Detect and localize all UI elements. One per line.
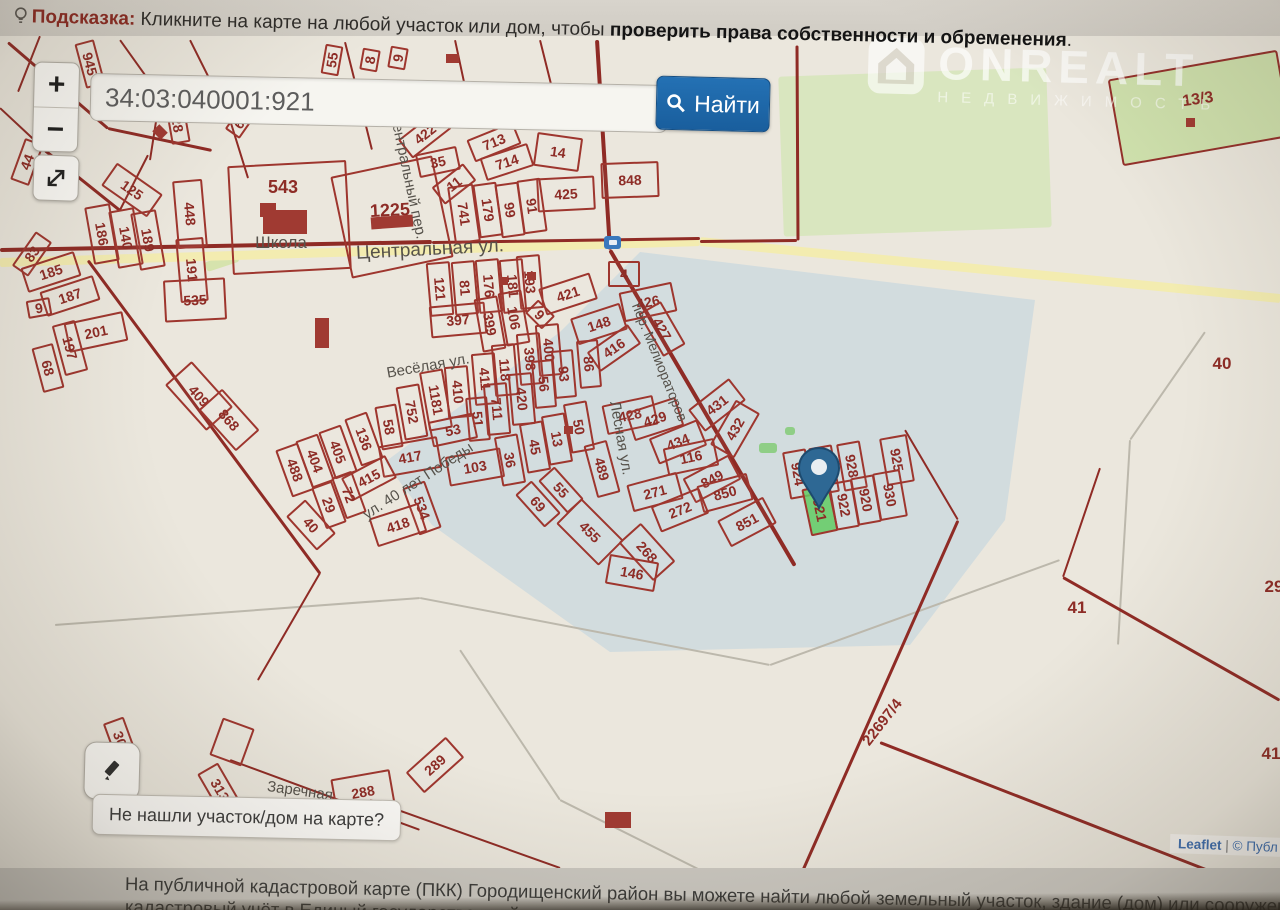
leaflet-attribution: Leaflet | © Публ	[1170, 834, 1280, 857]
parcel-55[interactable]: 55	[321, 44, 344, 77]
parcel-4[interactable]: 4	[608, 261, 640, 287]
attribution-rest[interactable]: © Публ	[1232, 838, 1278, 855]
zoom-out-button[interactable]: −	[33, 107, 78, 152]
building	[1186, 118, 1195, 127]
bus-stop-icon	[604, 236, 621, 249]
parcel-535[interactable]: 535	[163, 277, 227, 322]
boundary-line	[1062, 468, 1101, 578]
parcel-29[interactable]: 29	[1262, 576, 1280, 596]
boundary-line	[796, 45, 800, 240]
pencil-icon	[99, 758, 126, 785]
building	[605, 812, 631, 828]
hint-bar: Подсказка: Кликните на карте на любой уч…	[0, 0, 1280, 36]
parcel-543[interactable]: 543	[263, 177, 303, 197]
building	[499, 277, 508, 285]
search-button[interactable]: Найти	[655, 76, 770, 133]
expand-arrows-icon	[43, 165, 70, 192]
location-pin-icon	[797, 446, 841, 510]
boundary-line	[1062, 576, 1280, 702]
building	[446, 54, 459, 63]
boundary-line	[595, 40, 612, 250]
screen: 9452864412544819118614018983185187920119…	[0, 0, 1280, 910]
green-area	[785, 427, 795, 435]
parcel[interactable]	[209, 717, 255, 766]
leaflet-link[interactable]: Leaflet	[1178, 836, 1222, 853]
parcel-8[interactable]: 8	[359, 48, 381, 73]
street-label: Школа	[255, 233, 307, 253]
path-line	[1129, 331, 1206, 440]
parcel-41[interactable]: 41	[1062, 597, 1092, 617]
zoom-in-button[interactable]: +	[34, 62, 79, 108]
parcel-41[interactable]: 41	[1259, 743, 1280, 763]
map-canvas[interactable]: 9452864412544819118614018983185187920119…	[0, 0, 1280, 910]
path-line	[459, 649, 561, 800]
parcel-848[interactable]: 848	[600, 161, 659, 199]
parcel-425[interactable]: 425	[536, 176, 596, 213]
not-found-bubble[interactable]: Не нашли участок/дом на карте?	[92, 794, 402, 841]
parcel-93[interactable]: 93	[551, 349, 577, 399]
cadastral-quarter-highlight	[0, 0, 1280, 910]
path-line	[560, 799, 701, 871]
lightbulb-icon	[14, 7, 28, 25]
fullscreen-button[interactable]	[32, 154, 79, 201]
parcel-289[interactable]: 289	[406, 737, 465, 794]
parcel-86[interactable]: 86	[576, 339, 602, 389]
green-area	[759, 443, 777, 453]
parcel-9[interactable]: 9	[387, 46, 409, 71]
edit-button[interactable]	[83, 741, 140, 800]
building	[315, 318, 329, 348]
building	[527, 272, 536, 280]
building	[564, 426, 573, 434]
building	[260, 203, 276, 217]
boundary-line	[257, 572, 321, 680]
parcel-14[interactable]: 14	[533, 132, 583, 172]
boundary-line	[700, 239, 797, 243]
path-line	[55, 597, 420, 626]
search-button-label: Найти	[694, 90, 760, 119]
zoom-controls: + −	[32, 61, 80, 152]
search-icon	[666, 93, 686, 113]
parcel-40[interactable]: 40	[1207, 353, 1237, 373]
